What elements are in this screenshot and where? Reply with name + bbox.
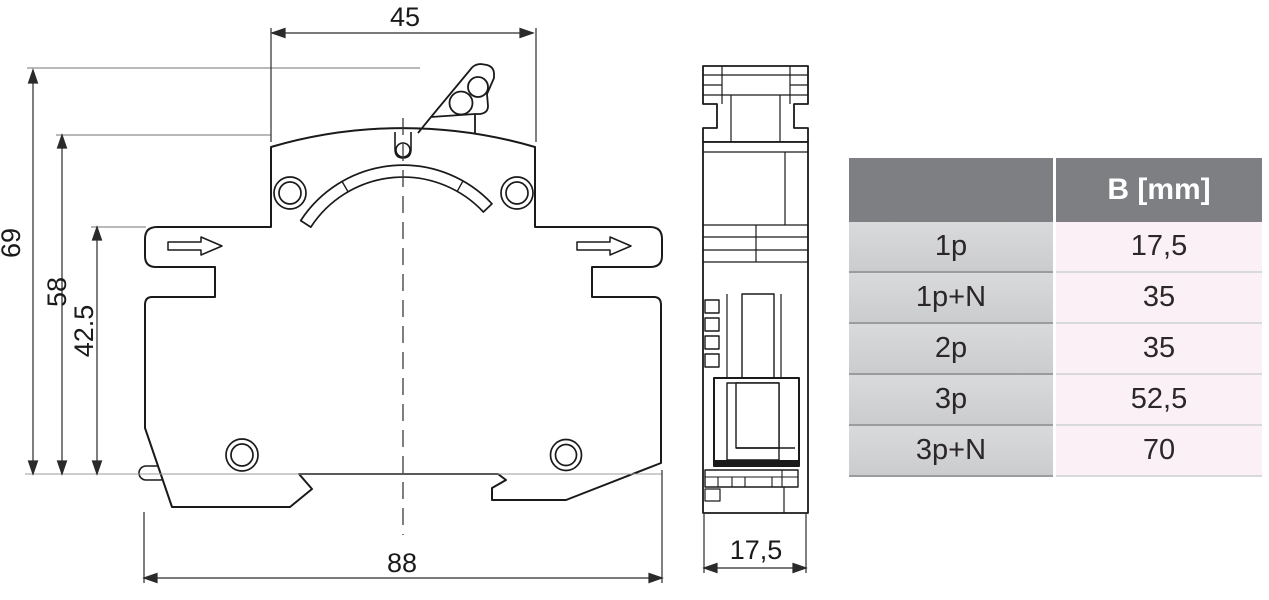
dim-label-side-width: 17,5 <box>730 535 783 565</box>
vent-slot <box>705 318 719 331</box>
table-row: 1p+N 35 <box>849 273 1262 324</box>
table-row: 3p 52,5 <box>849 375 1262 426</box>
base-screw-left-inner <box>231 444 253 466</box>
rail-clip-inner2 <box>736 383 779 448</box>
dim-label-bottom-width: 88 <box>387 548 417 578</box>
pole-config-label: 1p <box>849 222 1053 273</box>
head-screw-left-inner <box>279 182 301 204</box>
vent-slot <box>705 354 719 367</box>
width-spec-table: B [mm] 1p 17,5 1p+N 35 2p 35 3p 52,5 3p+… <box>849 158 1262 477</box>
dim-label-lower-height: 42.5 <box>69 305 99 358</box>
arrowhead <box>793 564 806 573</box>
lever-hole-upper <box>468 77 488 97</box>
base-screw-right-inner <box>556 445 577 466</box>
table-row: 1p 17,5 <box>849 222 1262 273</box>
dim-label-top-width: 45 <box>390 2 420 32</box>
table-header-value-cell: B [mm] <box>1056 158 1262 222</box>
latch-band <box>705 470 798 487</box>
pole-config-label: 1p+N <box>849 273 1053 324</box>
pole-config-label: 2p <box>849 324 1053 375</box>
pole-config-label: 3p+N <box>849 426 1053 477</box>
dimension-drawing: 45 69 58 42.5 88 17,5 <box>0 0 840 600</box>
side-foot-notch <box>705 489 720 501</box>
arrowhead <box>58 461 67 474</box>
head-screw-right-inner <box>506 182 528 204</box>
table-header-row: B [mm] <box>849 158 1262 222</box>
table-header-spec-cell <box>849 158 1053 222</box>
table-row: 2p 35 <box>849 324 1262 375</box>
arrowhead <box>93 227 102 240</box>
width-value: 35 <box>1056 273 1262 324</box>
rail-clip-bar <box>714 460 799 465</box>
vent-slot <box>705 336 719 349</box>
width-value: 35 <box>1056 324 1262 375</box>
arrowhead <box>520 29 533 38</box>
arrowhead <box>272 29 285 38</box>
arrowhead <box>93 461 102 474</box>
dim-label-overall-height: 69 <box>0 228 26 258</box>
side-view <box>703 66 808 513</box>
width-value: 70 <box>1056 426 1262 477</box>
arrowhead <box>29 70 38 83</box>
technical-drawing-page: 45 69 58 42.5 88 17,5 B [mm] 1p 17,5 1p+… <box>0 0 1269 600</box>
arrowhead <box>649 574 662 583</box>
width-value: 52,5 <box>1056 375 1262 426</box>
arrowhead <box>144 574 157 583</box>
lever-hole-lower <box>450 92 473 115</box>
width-value: 17,5 <box>1056 222 1262 273</box>
side-channel <box>742 294 774 378</box>
arrowhead <box>29 461 38 474</box>
side-head-outline <box>703 66 808 142</box>
arrowhead <box>704 564 717 573</box>
arrowhead <box>58 135 67 148</box>
pole-config-label: 3p <box>849 375 1053 426</box>
vent-slot <box>705 300 719 313</box>
dim-label-body-height: 58 <box>42 277 72 307</box>
table-row: 3p+N 70 <box>849 426 1262 477</box>
